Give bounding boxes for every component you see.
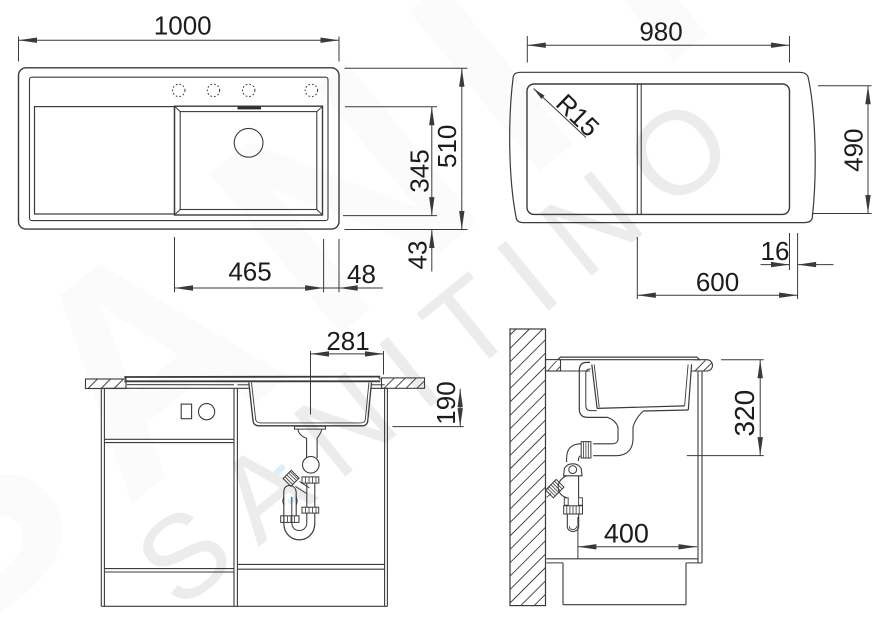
svg-text:980: 980 [639,16,682,46]
svg-text:400: 400 [604,519,649,549]
svg-text:320: 320 [729,390,760,437]
svg-text:48: 48 [347,259,376,289]
svg-text:16: 16 [761,236,790,266]
svg-text:510: 510 [432,125,462,168]
svg-text:1000: 1000 [154,11,212,41]
svg-text:43: 43 [403,241,433,270]
svg-text:465: 465 [228,257,271,287]
svg-text:490: 490 [839,129,869,172]
svg-text:600: 600 [696,267,739,297]
svg-text:190: 190 [431,381,461,424]
svg-text:345: 345 [405,149,435,192]
svg-text:281: 281 [326,326,369,356]
